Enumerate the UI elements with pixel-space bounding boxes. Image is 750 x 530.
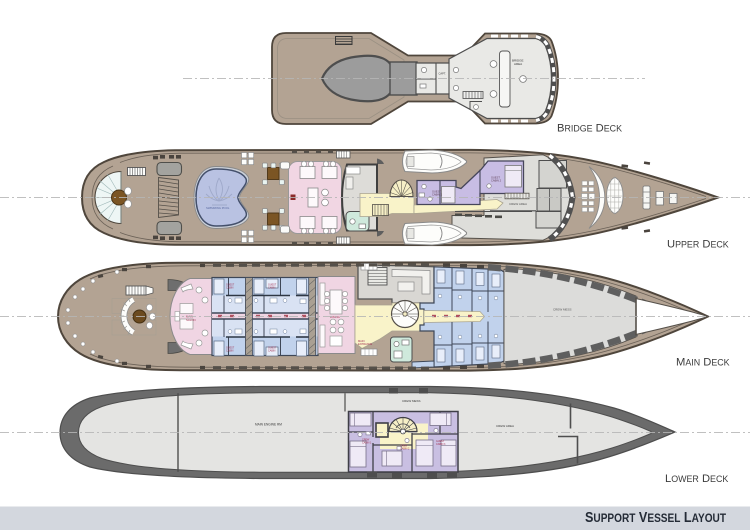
- svg-text:AREA: AREA: [514, 62, 522, 66]
- svg-text:LOWER DECK: LOWER DECK: [665, 473, 728, 485]
- svg-text:MAIN DECK: MAIN DECK: [676, 357, 730, 369]
- svg-text:CREW AREA: CREW AREA: [496, 424, 514, 428]
- svg-text:CABIN 2: CABIN 2: [400, 447, 410, 450]
- svg-text:BRIDGE DECK: BRIDGE DECK: [557, 123, 622, 135]
- svg-text:SUPPORT VESSEL LAYOUT: SUPPORT VESSEL LAYOUT: [585, 509, 727, 526]
- svg-text:MAIN ENGINE RM: MAIN ENGINE RM: [255, 423, 282, 427]
- svg-text:CREW MESS: CREW MESS: [402, 399, 421, 403]
- svg-text:DINING: DINING: [330, 315, 340, 319]
- svg-text:CABIN: CABIN: [226, 286, 234, 289]
- svg-text:UPPER DECK: UPPER DECK: [667, 239, 729, 251]
- svg-text:CAPT.: CAPT.: [439, 72, 447, 76]
- svg-text:CABIN 1: CABIN 1: [432, 193, 443, 197]
- svg-text:CABIN: CABIN: [268, 349, 276, 352]
- svg-text:CABIN 2: CABIN 2: [491, 179, 502, 183]
- svg-text:CABIN 1: CABIN 1: [362, 441, 372, 444]
- svg-text:SWIMMING POOL: SWIMMING POOL: [206, 206, 230, 210]
- svg-text:CABIN: CABIN: [226, 349, 234, 352]
- svg-text:CABIN 3: CABIN 3: [436, 443, 446, 446]
- svg-text:CABIN: CABIN: [268, 286, 276, 289]
- svg-text:CREW AREA: CREW AREA: [509, 202, 527, 206]
- svg-text:ENTRANCE: ENTRANCE: [358, 342, 373, 346]
- svg-text:SALON: SALON: [186, 318, 195, 322]
- svg-text:CREW MESS: CREW MESS: [553, 308, 572, 312]
